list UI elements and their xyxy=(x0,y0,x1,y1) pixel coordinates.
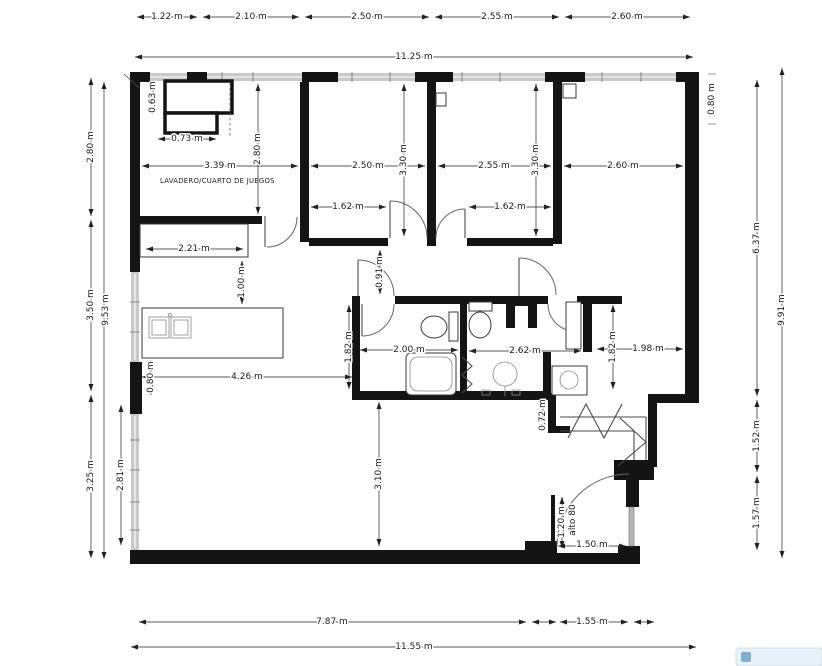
dim-bedroom1-height: 3.30 m xyxy=(399,144,409,176)
floor-plan-page: LAVADERO/CUARTO DE JUEGOS 1.22 m 2.10 m … xyxy=(0,0,822,666)
dim-bottom-total: 11.55 m xyxy=(395,642,432,652)
bath1-door-arc xyxy=(362,304,394,336)
dim-half-wall-height: 1.20 m xyxy=(557,506,567,538)
dim-counter-island-gap: 1.00 m xyxy=(237,266,247,298)
dim-bath1-width: 2.00 m xyxy=(393,345,425,355)
dim-top-5: 2.60 m xyxy=(611,12,643,22)
dim-top-1: 1.22 m xyxy=(151,12,183,22)
kitchen-island xyxy=(142,308,283,358)
dim-laundry-unit-width: 0.73 m xyxy=(171,134,203,144)
dim-bottom-2: 1.55 m xyxy=(576,617,608,627)
dim-top-3: 2.50 m xyxy=(351,12,383,22)
dim-right-total: 9.91 m xyxy=(777,294,787,326)
dim-entry-width: 1.50 m xyxy=(576,540,608,550)
dim-left-3: 3.25 m xyxy=(86,460,96,492)
entry-door-leaf xyxy=(629,507,634,546)
dim-left-2: 3.50 m xyxy=(86,289,96,321)
dim-right-2: 1.52 m xyxy=(752,420,762,452)
dim-stair-wall: 0.72 m xyxy=(538,399,548,431)
hall-east-door-arc xyxy=(519,258,556,295)
laundry-unit xyxy=(165,81,232,113)
shower-drain xyxy=(493,362,517,386)
dim-utility-depth: 1.82 m xyxy=(608,331,618,363)
bath1-toilet-tank xyxy=(449,312,458,341)
dim-laundry-width: 3.39 m xyxy=(204,161,236,171)
niche-opening xyxy=(515,306,528,328)
dim-bottom-1: 7.87 m xyxy=(316,617,348,627)
dim-island-length: 4.26 m xyxy=(231,372,263,382)
dim-left-living: 2.81 m xyxy=(116,459,126,491)
bath2-cabinet xyxy=(566,302,581,349)
dim-bedroom1-width: 2.50 m xyxy=(352,161,384,171)
dim-bath2-width: 2.62 m xyxy=(509,346,541,356)
stair-break-line-2 xyxy=(618,418,646,466)
bath2-toilet-tank xyxy=(469,302,492,311)
laundry-unit-2 xyxy=(165,113,217,133)
dim-laundry-height: 2.80 m xyxy=(253,133,263,165)
dim-top-4: 2.55 m xyxy=(481,12,513,22)
half-height-wall xyxy=(551,495,555,550)
dim-left-1: 2.80 m xyxy=(86,131,96,163)
dim-half-wall-note: alto 80 xyxy=(568,504,578,536)
dim-bath1-depth: 1.82 m xyxy=(344,331,354,363)
laundry-door-arc xyxy=(267,217,297,247)
staircase xyxy=(560,404,646,466)
dim-bedroom2-height: 3.30 m xyxy=(531,144,541,176)
dim-bedroom2-width: 2.55 m xyxy=(478,161,510,171)
dim-laundry-unit-height: 0.63 m xyxy=(148,81,158,113)
dim-hallway-width: 0.91 m xyxy=(375,256,385,288)
dim-top-total: 11.25 m xyxy=(395,52,432,62)
dim-utility-width: 1.98 m xyxy=(632,344,664,354)
dim-bedroom2-wall: 1.62 m xyxy=(494,202,526,212)
dim-right-3: 1.57 m xyxy=(752,497,762,529)
dim-living-depth: 3.10 m xyxy=(374,458,384,490)
room-label-laundry-playroom: LAVADERO/CUARTO DE JUEGOS xyxy=(160,177,275,185)
bath2-toilet-bowl xyxy=(469,312,491,338)
dims-left: 2.80 m 3.50 m 3.25 m 9.53 m 2.81 m xyxy=(86,78,126,559)
dim-bedroom3-width: 2.60 m xyxy=(607,161,639,171)
bath1-toilet-bowl xyxy=(421,316,447,338)
bathtub xyxy=(406,353,456,395)
bedroom1-door-arc xyxy=(390,201,427,238)
dim-top-2: 2.10 m xyxy=(235,12,267,22)
bedroom2-wall-unit xyxy=(436,93,446,106)
stair-break-line xyxy=(568,404,622,438)
bedroom2-door-arc xyxy=(436,209,465,238)
dim-right-1: 6.37 m xyxy=(752,222,762,254)
dim-left-total: 9.53 m xyxy=(101,294,111,326)
room3-wall-unit xyxy=(563,84,576,98)
dim-bedroom1-wall: 1.62 m xyxy=(332,202,364,212)
floor-plan-drawing: LAVADERO/CUARTO DE JUEGOS 1.22 m 2.10 m … xyxy=(0,0,822,666)
washer xyxy=(552,366,587,395)
dims-right: 0.80 m 6.37 m 1.52 m 1.57 m 9.91 m xyxy=(707,68,787,558)
watermark-logo xyxy=(736,648,822,666)
dim-counter-width: 2.21 m xyxy=(178,244,210,254)
dim-right-wall-top: 0.80 m xyxy=(707,83,717,115)
dims-bottom: 7.87 m 1.55 m 11.55 m xyxy=(131,617,696,652)
dim-island-offset: 0.80 m xyxy=(146,361,156,393)
dims-top: 1.22 m 2.10 m 2.50 m 2.55 m 2.60 m 11.25… xyxy=(135,12,693,62)
